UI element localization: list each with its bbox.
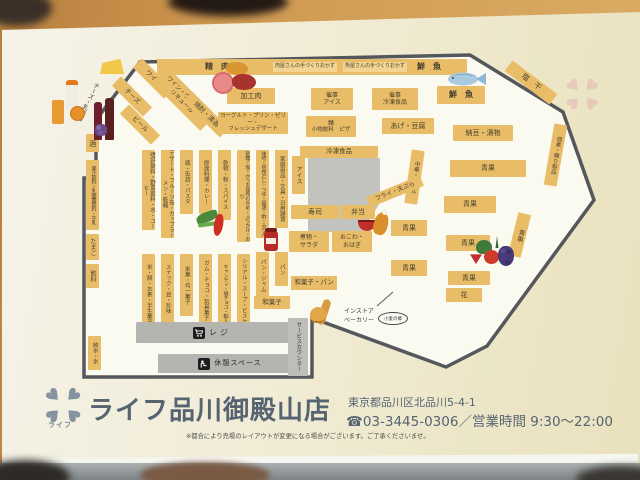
aisle-lower-4: ガム・チョコ・玩具菓子 (199, 254, 212, 326)
ham-icon (212, 72, 234, 94)
aisle-lower-7: パン・ジャム (256, 252, 269, 298)
nimono-line2: サラダ (300, 242, 318, 249)
aisle-upper-6: 砂糖・塩・かつお昆布わかめ・ふりかけ・のり (237, 150, 250, 242)
meat-icons (212, 62, 256, 94)
cheese-icon (100, 57, 124, 74)
register-bar: レジ (136, 322, 288, 343)
komugi-no-sato-badge: 小麦の郷 (378, 312, 408, 325)
frozen-label: 冷凍食品 (383, 99, 407, 106)
bread-icon (310, 299, 338, 325)
juice-glass-icon (52, 100, 64, 124)
jam-jar-icon (264, 228, 278, 251)
ice-label: アイス (323, 99, 341, 106)
bun-icon (310, 307, 326, 323)
produce-block: 青果 (391, 220, 427, 236)
juice-milk-block: 果汁飲料・乳酸菌飲料・牛乳 (86, 160, 99, 230)
orange-icon (70, 106, 85, 121)
yogurt-dessert-block: ヨーグルト・プリン・ゼリー・ フレッシュデザート (218, 112, 288, 134)
bench-icon (198, 358, 210, 370)
aisle-lower-2: スナック・豆・珍味 (161, 254, 174, 324)
event-ice-block: 催事 アイス (311, 88, 353, 110)
pizza-label: ピザ (339, 127, 350, 133)
fresh-fish-label: 鮮 魚 (417, 62, 441, 71)
yogurt-line2: フレッシュデザート (228, 126, 278, 132)
yogurt-line1: ヨーグルト・プリン・ゼリー・ (218, 113, 288, 126)
aisle-upper-3: 瓶・缶詰・パスタ (180, 150, 193, 214)
eggs-block: たまご (86, 234, 99, 260)
produce-block: 青果 (391, 260, 427, 276)
produce-block: 青果 (448, 271, 490, 285)
event-label: 催事 (326, 92, 338, 99)
fish-icon (446, 70, 488, 88)
noodle-label: 麺 (328, 120, 334, 127)
layout-disclaimer-note: ※都合により売場のレイアウトが変更になる場合がございます。ご了承くださいませ。 (186, 431, 442, 440)
produce-block: 青果 (450, 160, 526, 177)
sushi-block: 寿司 (291, 205, 339, 219)
store-address: 東京都品川区北品川5-4-1 (348, 394, 476, 410)
okowa-line2: おはぎ (343, 242, 361, 249)
aisle-lower-8: パン (275, 252, 288, 286)
steak-icon (232, 74, 256, 90)
rest-space-bar: 休憩スペース (158, 354, 302, 373)
register-label: レジ (209, 328, 231, 337)
tomato-icon (484, 250, 499, 264)
fish-side-dish-label: 魚屋さんの手づくりおかず (343, 62, 407, 72)
pure-water-ice-block: 純水・氷 (88, 336, 101, 370)
bakery-line2: ベーカリー (344, 315, 382, 324)
nimono-line1: 煮物・ (300, 234, 318, 241)
store-phone-hours: ☎03-3445-0306／営業時間 9:30～22:00 (346, 410, 613, 430)
drinks-block: 飲料 (86, 264, 99, 288)
ice-cream-aisle-label: アイス (292, 156, 305, 194)
meat-side-dish-label: 肉屋さんの手づくりおかず (273, 62, 337, 72)
aisle-upper-2: デザート・フルーツ缶・カップラーメン・乾麺 (161, 150, 174, 238)
photo-of-store-map: ライフ品川御殿山店 ♥ ♥ ♥ ♥ 精 肉 肉屋さんの手づくりおかず 魚屋さんの… (0, 0, 640, 480)
cheese-wedge (100, 57, 124, 74)
jar-label (266, 238, 276, 244)
noodle-sub-row: 小物飲料 ピザ (312, 127, 351, 133)
aisle-upper-8: 家庭用品・文具・日用雑貨 (275, 150, 288, 228)
chili-vegetable-icon (196, 210, 232, 238)
bottle-green (105, 98, 114, 140)
aburaage-tofu-block: あげ・豆腐 (382, 118, 434, 134)
event-frozen-block: 催事 冷凍食品 (372, 88, 418, 110)
event-label: 催事 (389, 92, 401, 99)
cart-icon (193, 327, 205, 339)
produce-block: 青果 (444, 196, 496, 213)
noodle-pizza-block: 麺 小物飲料 ピザ (306, 116, 356, 137)
grape-bunch-icon (498, 246, 514, 266)
fresh-fish-2-block: 鮮 魚 (437, 86, 485, 104)
frozen-food-bar: 冷凍食品 (300, 146, 378, 158)
wagashi-block: 和菓子 (254, 296, 290, 309)
dairy-drinks-icon (52, 80, 86, 128)
drumstick-icon (371, 211, 390, 237)
produce-icons (470, 240, 514, 268)
bakery-line1: インストア (344, 306, 382, 315)
chicken-icon (358, 212, 392, 238)
life-logo-text: ライフ (48, 420, 72, 430)
aisle-upper-1: 嗜好飲料・野菜飲料・水・コーヒー (142, 150, 155, 230)
table-surface-bottom (0, 463, 640, 480)
natto-pickles-block: 納豆・漬物 (453, 125, 513, 141)
aisle-upper-4: 即席料理・カレー (199, 150, 212, 214)
wine-bottles-icon (92, 98, 118, 142)
flower-block: 花 (446, 288, 482, 302)
instore-bakery-label: インストア ベーカリー (344, 306, 382, 324)
meat-fish-counter-band: 精 肉 肉屋さんの手づくりおかず 魚屋さんの手づくりおかず 鮮 魚 (157, 59, 467, 75)
service-counter-block: サービスカウンター (288, 318, 308, 376)
rest-space-label: 休憩スペース (214, 359, 261, 367)
aisle-upper-7: 味噌・昆布だし・つゆ・醤油・酢・みりん (256, 150, 269, 238)
simmered-salad-block: 煮物・ サラダ (289, 231, 329, 252)
small-drinks-label: 小物飲料 (312, 127, 334, 133)
bone-icon (382, 209, 388, 215)
grapes-icon (95, 124, 107, 136)
jar-lid (265, 228, 277, 232)
store-name-title: ライフ品川御殿山店 (88, 390, 331, 427)
wagashi-bread-block: 和菓子・パン (291, 276, 337, 290)
life-logo-clover-icon: ♥ ♥ ♥ ♥ (46, 388, 82, 424)
aisle-lower-3: 米菓・均一菓子 (180, 254, 193, 316)
